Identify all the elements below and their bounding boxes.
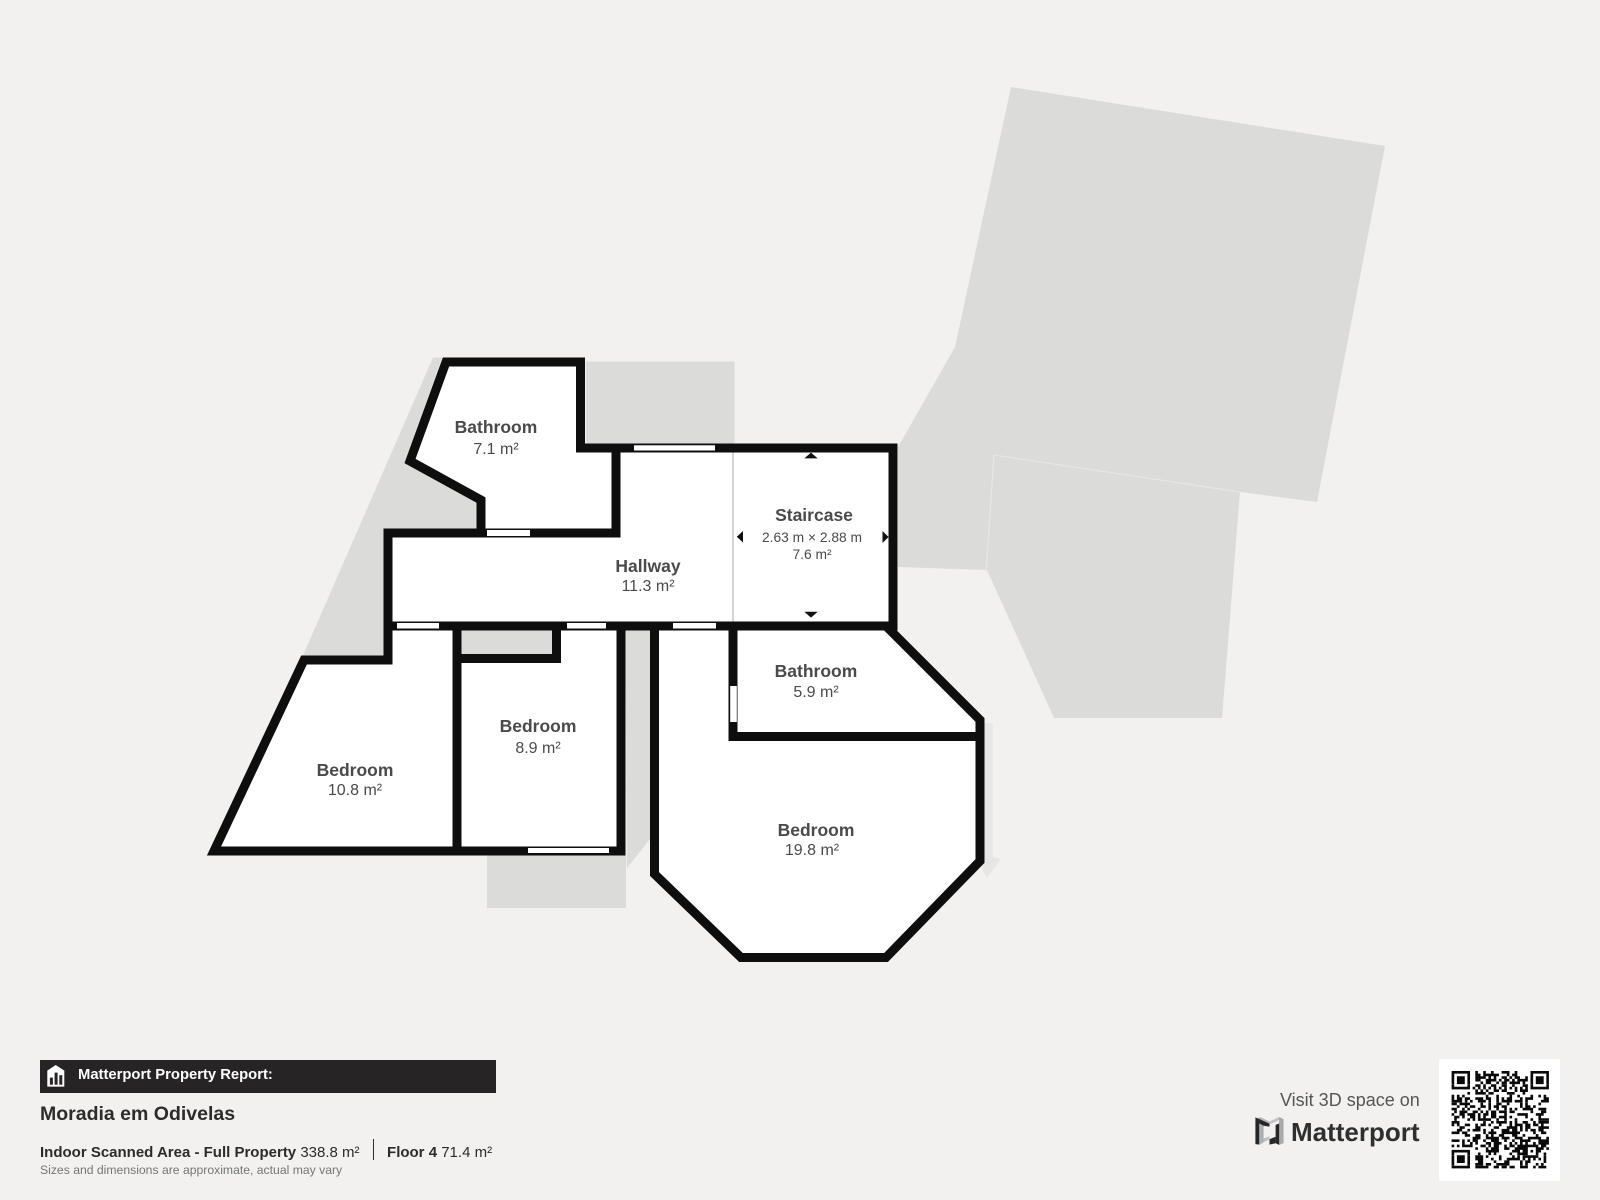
svg-text:7.6 m²: 7.6 m² <box>792 547 832 562</box>
svg-text:8.9 m²: 8.9 m² <box>515 740 561 757</box>
svg-text:Staircase: Staircase <box>775 505 853 525</box>
svg-text:7.1 m²: 7.1 m² <box>473 441 519 458</box>
svg-text:11.3 m²: 11.3 m² <box>621 578 675 595</box>
svg-text:5.9 m²: 5.9 m² <box>793 684 839 701</box>
svg-text:2.63 m × 2.88 m: 2.63 m × 2.88 m <box>762 530 862 545</box>
svg-text:Bedroom: Bedroom <box>317 760 394 780</box>
svg-text:19.8 m²: 19.8 m² <box>785 842 840 859</box>
svg-text:Bedroom: Bedroom <box>500 716 577 736</box>
svg-text:Hallway: Hallway <box>615 556 680 576</box>
svg-text:Bedroom: Bedroom <box>778 820 855 840</box>
svg-text:10.8 m²: 10.8 m² <box>328 782 383 799</box>
svg-text:Bathroom: Bathroom <box>775 661 858 681</box>
svg-text:Bathroom: Bathroom <box>455 417 538 437</box>
